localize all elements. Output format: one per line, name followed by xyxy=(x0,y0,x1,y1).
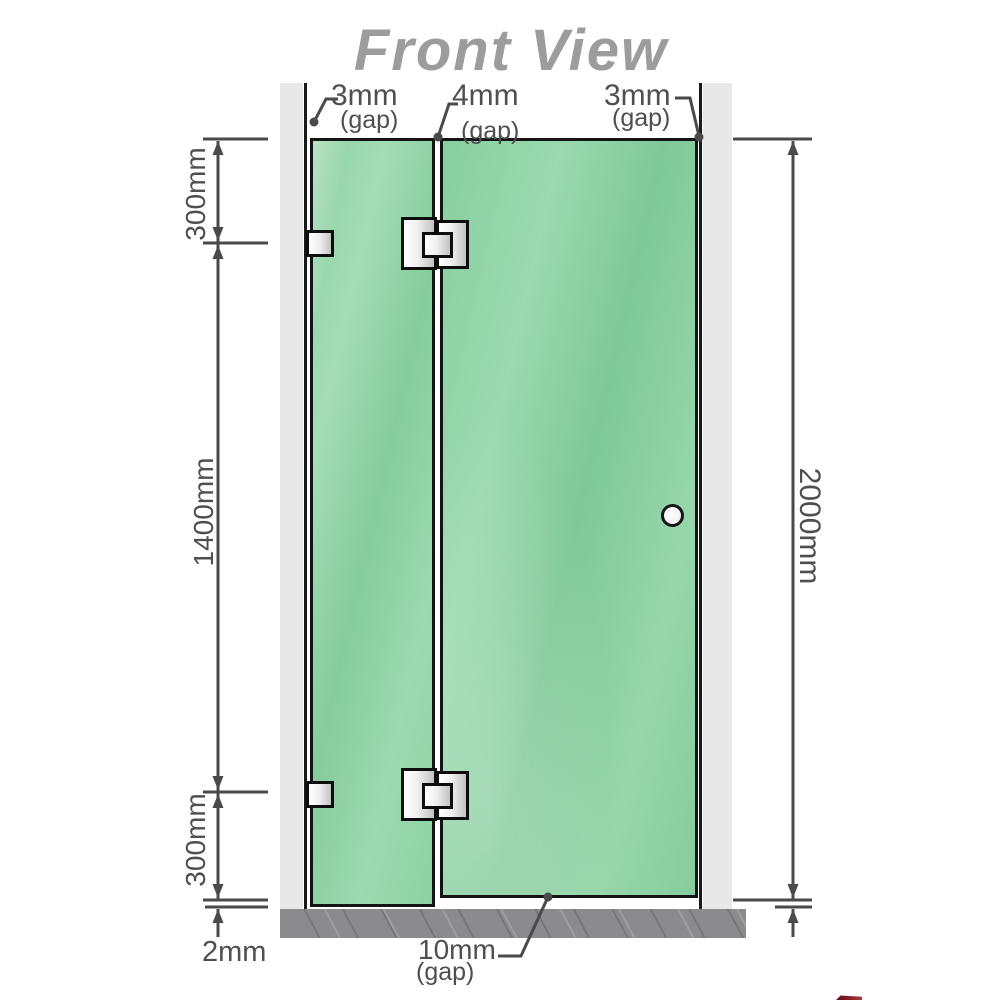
door-glass-panel xyxy=(440,138,698,898)
floor-gap-label: 2mm xyxy=(202,938,266,967)
logo-fragment xyxy=(836,995,862,1000)
wall-bracket-bottom xyxy=(306,781,334,808)
gap-label-left-unit: (gap) xyxy=(340,108,398,133)
gap-label-middle-unit: (gap) xyxy=(461,119,519,144)
page-title: Front View xyxy=(354,22,668,80)
gap-label-right-unit: (gap) xyxy=(612,106,670,131)
gap-label-bottom-unit: (gap) xyxy=(416,960,474,985)
dimension-label-300-bottom: 300mm xyxy=(182,793,210,886)
wall-left xyxy=(280,83,303,909)
door-knob xyxy=(661,504,684,527)
hinge-top-tongue xyxy=(422,232,453,258)
hinge-bottom-tongue xyxy=(422,783,453,809)
gap-label-middle-value: 4mm xyxy=(452,81,519,111)
wall-bracket-top xyxy=(306,230,334,257)
dimension-label-2000: 2000mm xyxy=(794,468,824,585)
wall-right xyxy=(703,83,732,909)
front-view-diagram: Front View xyxy=(0,0,1000,1000)
dimension-label-1400: 1400mm xyxy=(190,458,218,567)
floor-base xyxy=(280,909,746,938)
dimension-label-300-top: 300mm xyxy=(182,147,210,240)
wall-right-edge-line xyxy=(699,83,702,909)
